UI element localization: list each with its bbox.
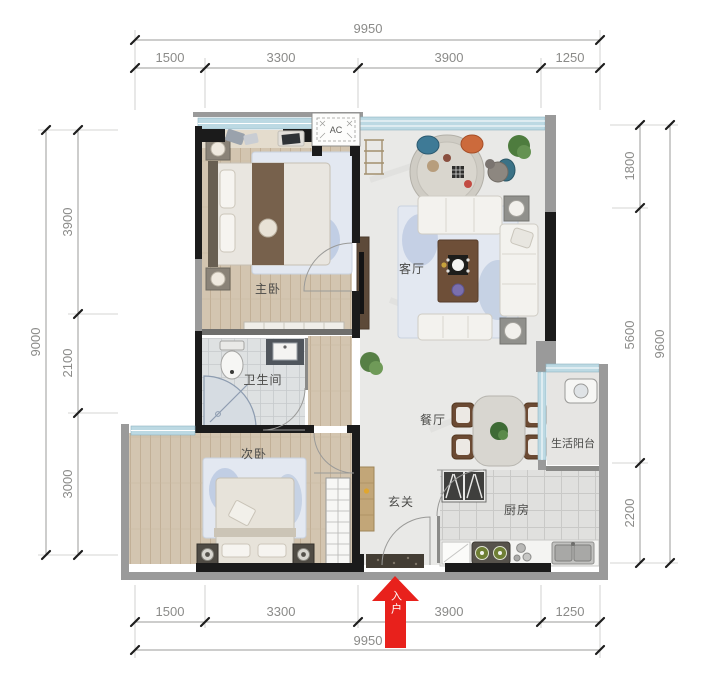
label-master-bedroom: 主卧 (255, 282, 281, 296)
label-bathroom: 卫生间 (243, 373, 282, 387)
pillow (220, 170, 235, 208)
bed-bench (214, 528, 296, 537)
wall (121, 572, 608, 580)
dim-right-seg1: 1800 (622, 152, 637, 181)
dim-top-total: 9950 (354, 21, 383, 36)
sofa-bottom (418, 314, 492, 340)
dim-bottom-seg1: 1500 (156, 604, 185, 619)
label-balcony: 生活阳台 (551, 436, 595, 450)
bed-runner (252, 163, 284, 265)
window (360, 117, 545, 130)
wall (121, 424, 129, 574)
laptop (282, 133, 301, 145)
dim-bottom-seg3: 3900 (435, 604, 464, 619)
dim-top-seg3: 3900 (435, 50, 464, 65)
floor-plan-page: AC 主卧 卫生间 次卧 客厅 餐厅 生活阳台 厨房 玄关 9950 (0, 0, 717, 697)
chair (417, 136, 439, 154)
dim-bottom-total: 9950 (354, 633, 383, 648)
label-kitchen: 厨房 (504, 502, 530, 517)
dish (452, 284, 464, 296)
dim-left-seg1: 3900 (60, 208, 75, 237)
floor-plan-drawing: AC 主卧 卫生间 次卧 客厅 餐厅 生活阳台 厨房 玄关 9950 (0, 0, 717, 697)
label-entry: 玄关 (388, 494, 414, 509)
dim-top-seg1: 1500 (156, 50, 185, 65)
toilet-tank (220, 341, 244, 350)
pillow (258, 544, 286, 557)
dimension-chain-right: 1800 5600 2200 9600 (610, 121, 678, 567)
dim-top-seg2: 3300 (267, 50, 296, 65)
wall (599, 364, 608, 572)
dim-left-total: 9000 (28, 328, 43, 357)
dim-bottom-seg2: 3300 (267, 604, 296, 619)
dim-bottom-seg4: 1250 (556, 604, 585, 619)
balcony-fixtures (565, 379, 597, 403)
wall (545, 115, 556, 212)
label-dining-room: 餐厅 (420, 412, 446, 427)
wall (195, 126, 202, 259)
entrance-arrow-label: 入户 (390, 590, 403, 616)
label-living-room: 客厅 (399, 261, 425, 276)
dimension-chain-top: 9950 1500 3300 3900 1250 (131, 21, 604, 110)
hallway-floor (308, 336, 352, 426)
chair (461, 135, 483, 153)
dimension-chain-left: 9000 3900 2100 3000 (28, 126, 118, 559)
ac-label: AC (330, 125, 343, 135)
doormat (366, 554, 424, 568)
wall (195, 425, 314, 433)
label-second-bedroom: 次卧 (241, 447, 267, 461)
dim-top-seg4: 1250 (556, 50, 585, 65)
bed-headboard (208, 161, 218, 267)
dim-right-seg2: 5600 (622, 321, 637, 350)
dim-right-seg3: 2200 (622, 499, 637, 528)
sofa-top (418, 196, 502, 234)
dimension-chain-bottom: 1500 3300 3900 1250 9950 (131, 585, 604, 658)
dim-left-seg3: 3000 (60, 470, 75, 499)
toilet-icon (221, 351, 243, 379)
wall (196, 563, 354, 573)
pillow (220, 214, 235, 252)
dim-left-seg2: 2100 (60, 349, 75, 378)
pillow (222, 544, 250, 557)
utensils (517, 544, 526, 553)
dim-right-total: 9600 (652, 330, 667, 359)
